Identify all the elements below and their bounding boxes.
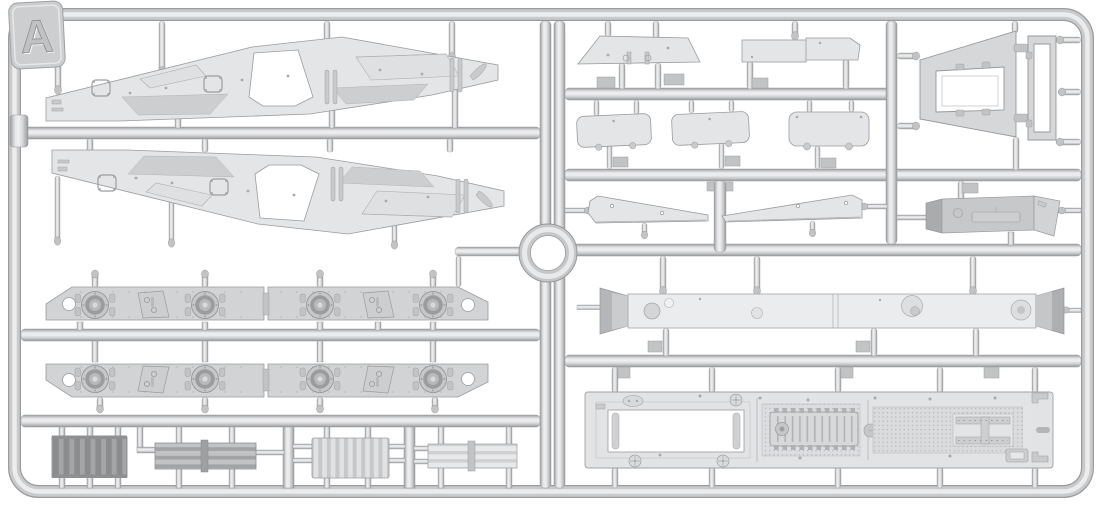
fender-panel-upper <box>46 37 498 121</box>
sprue-scene: A A <box>0 0 1100 506</box>
suspension-strip-row-1 <box>46 287 488 320</box>
roof-plate-pair <box>742 38 860 62</box>
center-ring <box>519 224 577 282</box>
radiator-light <box>312 438 389 478</box>
sprue-letter: A <box>19 9 55 63</box>
trapezoid-hatch-plate <box>578 36 700 64</box>
engine-block-detail <box>770 411 858 448</box>
louver-panel-mid <box>155 440 256 472</box>
radiator-dark <box>52 436 127 479</box>
hatch-panel-3 <box>789 112 869 150</box>
sprue-photo: A A <box>0 0 1100 506</box>
ladder-frame-detail <box>953 414 1013 446</box>
hull-floor-plate <box>585 392 1053 468</box>
narrow-hatch-frame <box>1026 36 1056 140</box>
engine-hatch-frame <box>920 31 1028 137</box>
stowage-box <box>926 196 1060 236</box>
hull-belly-beam <box>600 288 1064 334</box>
louver-panel-light <box>428 441 517 471</box>
fender-blade-left <box>588 196 708 223</box>
fender-panel-lower <box>52 150 504 234</box>
hatch-panel-1 <box>576 113 651 151</box>
suspension-strip-row-2 <box>46 364 488 397</box>
sprue-letter-tab: A A <box>8 1 65 70</box>
fender-blade-right <box>722 195 862 222</box>
hatch-panel-2 <box>671 111 749 149</box>
